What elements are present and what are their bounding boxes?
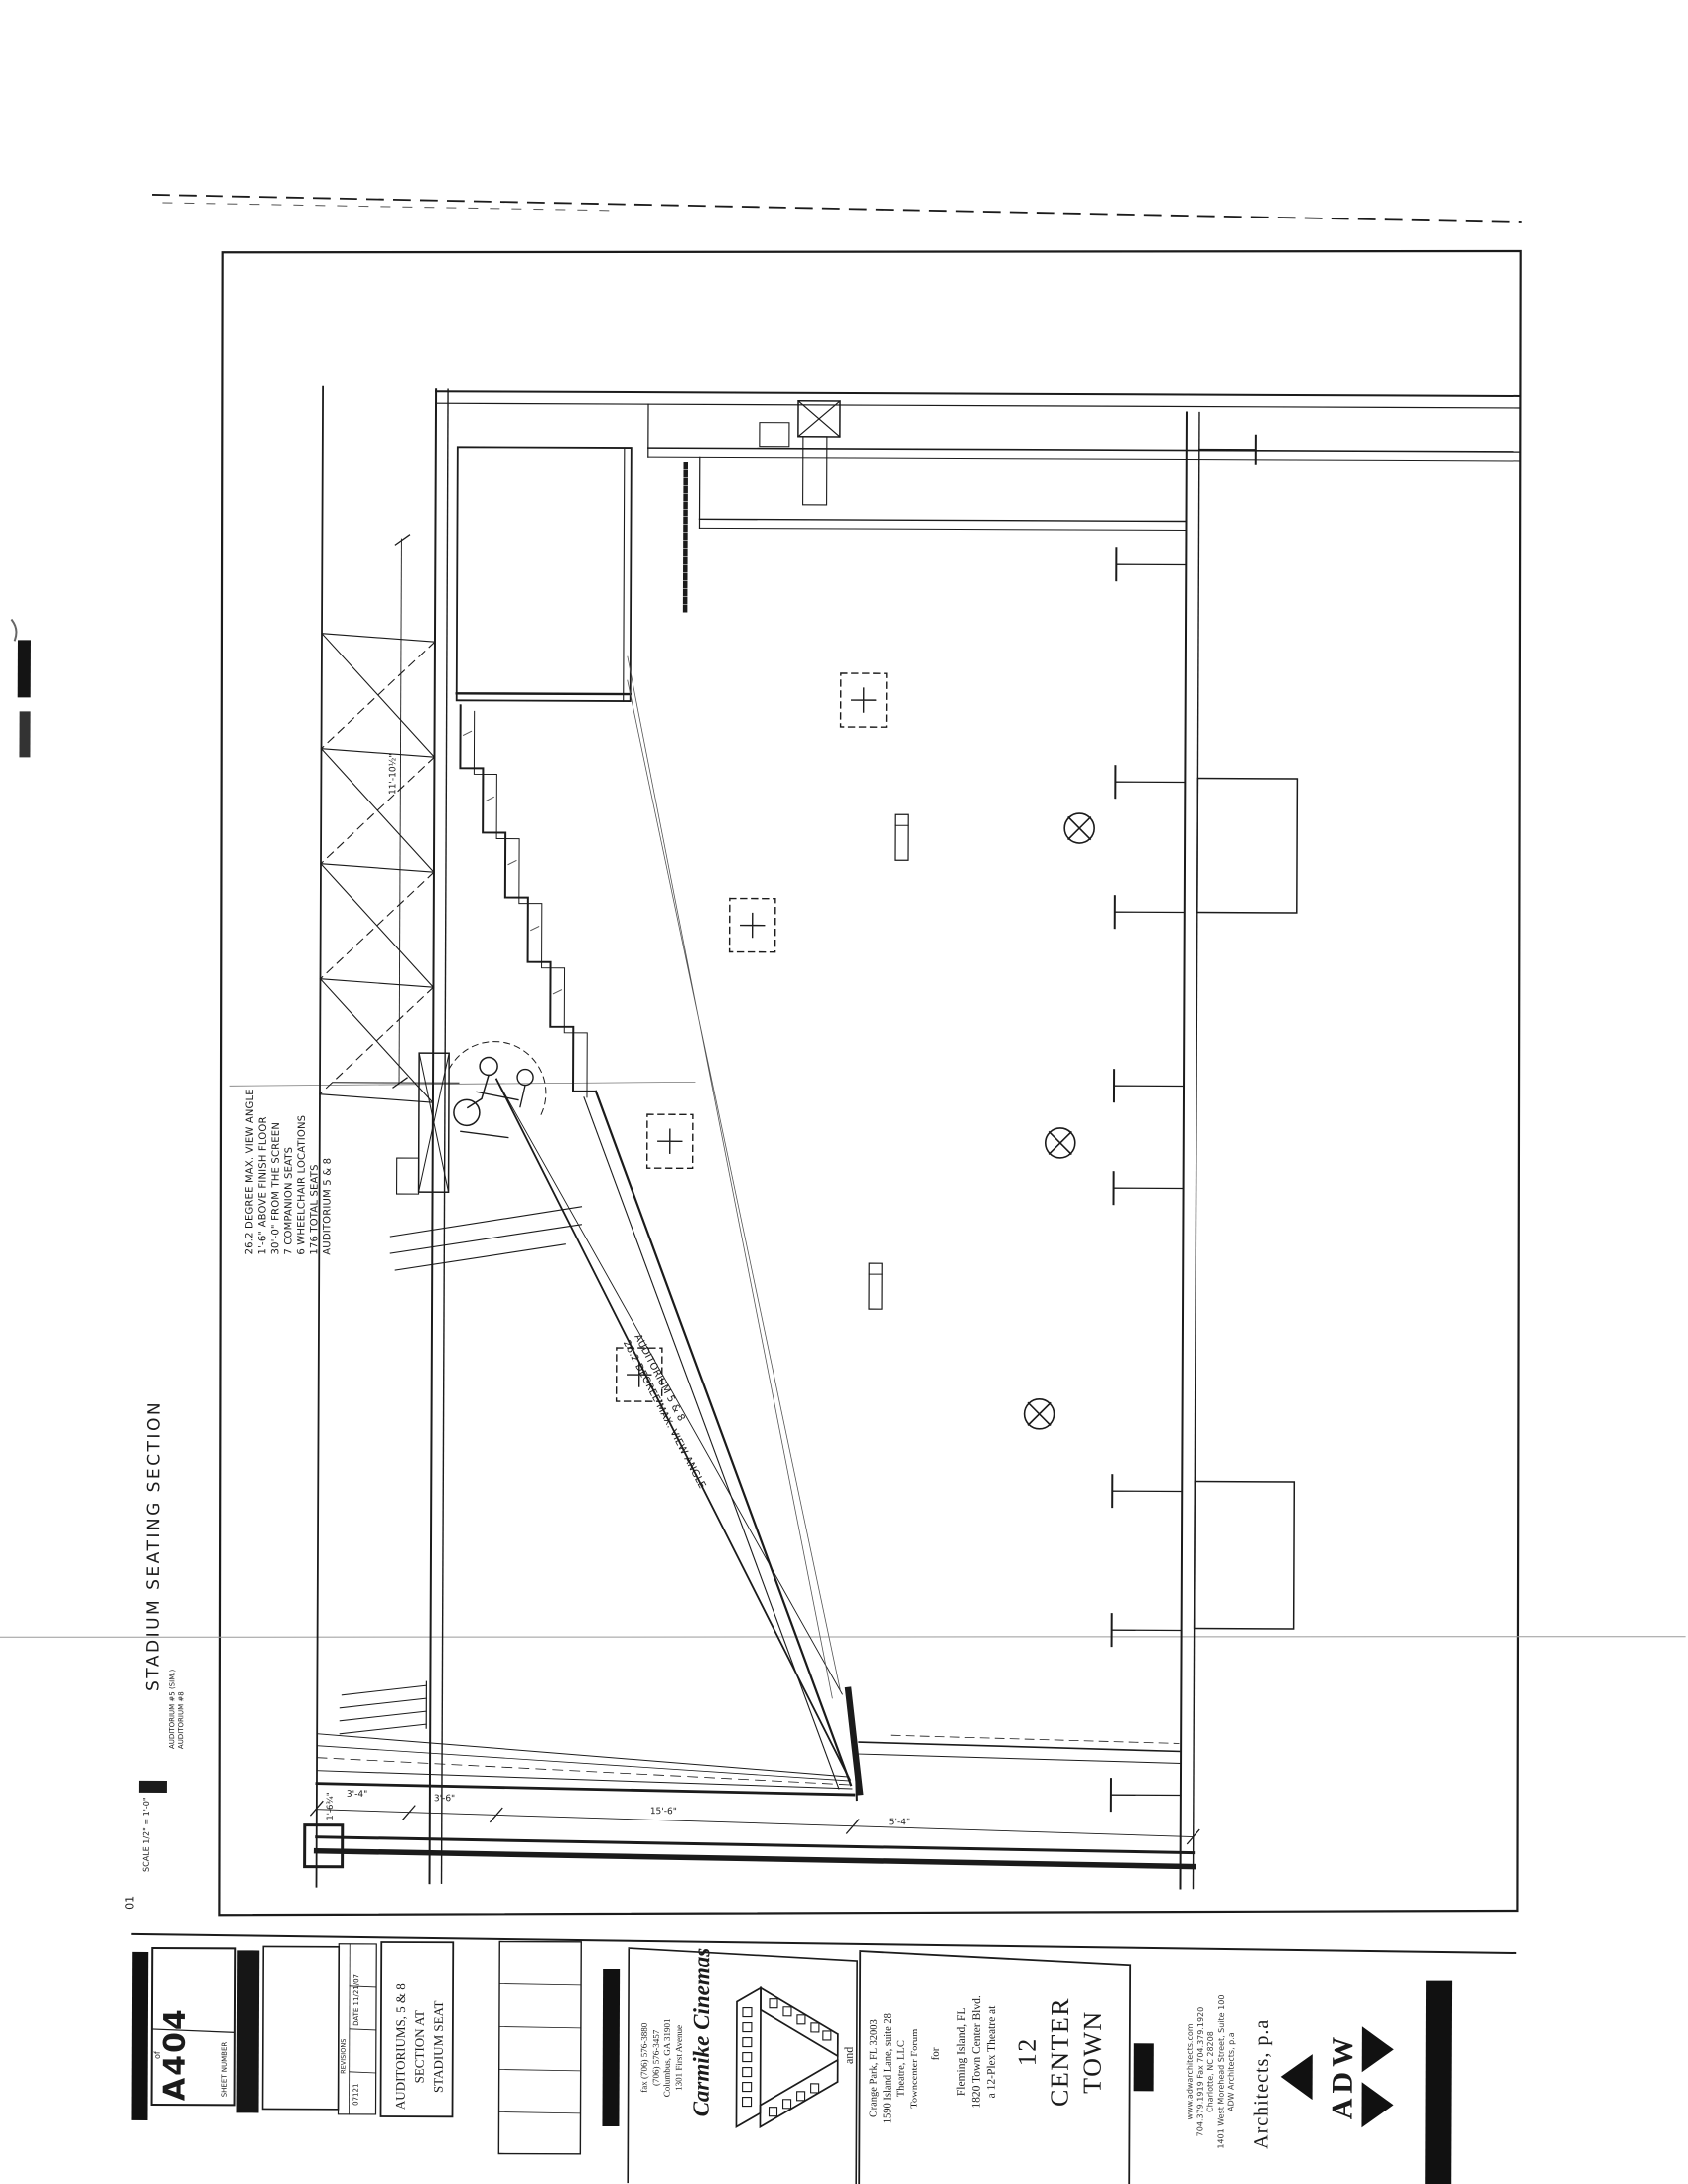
dim-riser-offset: 1'-6¾" (326, 1792, 336, 1820)
note-line: 1'-6" ABOVE FINISH FLOOR (256, 1116, 270, 1254)
wheelchair-detail (332, 1041, 582, 1271)
dim-stair-run: 11'-10½" (388, 753, 398, 795)
note-line: 6 WHEELCHAIR LOCATIONS (295, 1115, 309, 1255)
architect-info: ADW Architects, p.a 1401 West Morehead S… (1185, 1994, 1237, 2148)
exit-symbols (1025, 813, 1095, 1429)
stadium-steps (459, 705, 598, 1097)
architect-name: Architects, p.a (1250, 2019, 1274, 2149)
truss-bracing (320, 634, 435, 1102)
for-label: for (930, 2048, 942, 2061)
note-line: AUDITORIUM 5 & 8 (321, 1158, 334, 1255)
project-name: TOWN CENTER 12 (1011, 1997, 1109, 2108)
scale-note: SCALE 1/2" = 1'-0" (142, 1797, 152, 1872)
sheet-title: STADIUM SEAT SECTION AT AUDITORIUMS, 5 &… (391, 1983, 449, 2110)
dim-3: 15'-6" (650, 1807, 677, 1817)
owner-block: Towncenter Forum Theatre, LLC 1590 Islan… (867, 2013, 920, 2123)
sheet-of-label: of (153, 2051, 163, 2059)
scanned-architectural-sheet: AUDITORIUM 5 & 8 176 TOTAL SEATS 6 WHEEL… (0, 0, 1688, 2184)
note-line: 30'-0" FROM THE SCREEN (269, 1122, 283, 1255)
client-address: 1301 First Avenue Columbus, GA 31901 (70… (639, 2018, 685, 2097)
note-line: 26.2 DEGREE MAX. VIEW ANGLE (243, 1089, 257, 1254)
date-field: DATE 11/21/07 (352, 1974, 361, 2026)
project-description: a 12-Plex Theatre at 1820 Town Center Bl… (955, 1995, 1000, 2109)
sheet-number: A404 (158, 2007, 193, 2101)
detail-number: 01 (123, 1896, 137, 1910)
auditorium-envelope (317, 387, 1521, 1892)
section-title: STADIUM SEATING SECTION (143, 1400, 164, 1691)
revisions-label: REVISIONS (340, 2039, 348, 2074)
job-number: 07121 (352, 2084, 361, 2106)
sheet-number-label: SHEET NUMBER (221, 2042, 230, 2098)
client-joiner: and (842, 2047, 857, 2064)
ceiling-fixture-symbols (617, 672, 909, 1402)
film-cube-logo (736, 1988, 838, 2127)
sight-lines (493, 655, 856, 1789)
dim-4: 5'-4" (889, 1818, 910, 1827)
dim-2: 3'-6" (434, 1794, 455, 1804)
architect-logo-text: ADW (1326, 2032, 1359, 2119)
wall-fixtures (1111, 435, 1299, 1812)
note-line: 176 TOTAL SEATS (308, 1164, 321, 1254)
client-name: Carmike Cinemas (688, 1948, 715, 2117)
dim-1: 3'-4" (347, 1790, 367, 1800)
note-line: 7 COMPANION SEATS (282, 1147, 295, 1255)
seating-notes: AUDITORIUM 5 & 8 176 TOTAL SEATS 6 WHEEL… (243, 1089, 335, 1255)
screen-and-floor (305, 1681, 1195, 1871)
section-subtitle: AUDITORIUM #8 AUDITORIUM #5 (SIM.) (168, 1670, 186, 1749)
sheet-frame (0, 194, 1688, 1921)
